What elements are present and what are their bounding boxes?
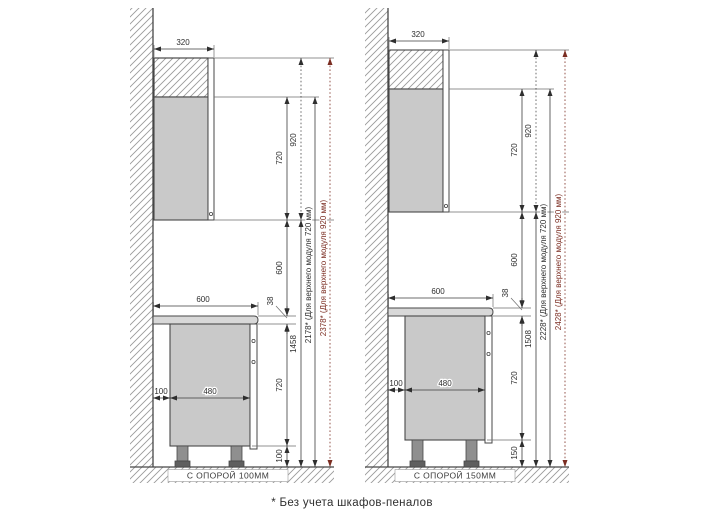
- base-front-knob-2: [487, 352, 490, 355]
- dim-countertop-thickness: 38: [501, 288, 510, 297]
- countertop: [388, 308, 493, 316]
- dim-floor-to-upper: 1508: [524, 330, 533, 348]
- upper-cabinet-door: [443, 50, 449, 212]
- support-label: С ОПОРОЙ 100ММ: [187, 470, 269, 481]
- leg-front-foot: [229, 461, 244, 467]
- dim-upper-height-920: 920: [289, 133, 298, 147]
- dim-upper-height-920: 920: [524, 124, 533, 138]
- dim-floor-to-upper: 1458: [289, 335, 298, 353]
- leg-rear: [177, 446, 188, 461]
- dim-total-height-720: 2178* (Для верхнего модуля 720 мм): [304, 206, 313, 343]
- dim-countertop-depth: 600: [196, 295, 210, 304]
- upper-cabinet: [154, 58, 214, 220]
- dim-total-height-920: 2428* (Для верхнего модуля 920 мм): [554, 193, 563, 330]
- base-front-knob-2: [252, 360, 255, 363]
- countertop: [153, 316, 258, 324]
- base-cabinet-body: [170, 324, 250, 446]
- dim-gap: 600: [510, 253, 519, 267]
- left-diagram: С ОПОРОЙ 100ММ 320 6: [130, 8, 334, 483]
- right-diagram: С ОПОРОЙ 150ММ 320 6: [365, 8, 569, 483]
- dim-base-height: 720: [275, 378, 284, 392]
- dim-support-height: 100: [275, 449, 284, 463]
- footnote: * Без учета шкафов-пеналов: [271, 497, 433, 509]
- dim-wall-clearance: 100: [389, 379, 403, 388]
- upper-door-knob: [444, 204, 447, 207]
- upper-cabinet-920-extension: [389, 50, 443, 89]
- dim-base-depth: 480: [203, 387, 217, 396]
- dim-upper-depth: 320: [411, 30, 425, 39]
- dim-upper-height-720: 720: [510, 143, 519, 157]
- wall-hatch: [365, 8, 388, 467]
- upper-cabinet-body: [154, 97, 208, 220]
- chain-dimensions: 720 600 38 720 100: [266, 97, 287, 467]
- base-cabinet-body: [405, 316, 485, 440]
- leg-rear-foot: [410, 461, 425, 467]
- dim-total-height-720: 2228* (Для верхнего модуля 720 мм): [539, 203, 548, 340]
- chain-dimensions: 720 600 38 720 150: [501, 89, 522, 467]
- kitchen-mounting-drawing: С ОПОРОЙ 100ММ 320 6: [0, 0, 702, 523]
- base-front-knob-1: [487, 331, 490, 334]
- dim-gap: 600: [275, 261, 284, 275]
- leg-rear-foot: [175, 461, 190, 467]
- upper-cabinet-door: [208, 58, 214, 220]
- dim-total-height-920: 2378* (Для верхнего модуля 920 мм): [319, 199, 328, 336]
- dim-countertop-depth: 600: [431, 287, 445, 296]
- leg-rear: [412, 440, 423, 461]
- upper-cabinet: [389, 50, 449, 212]
- upper-cabinet-body: [389, 89, 443, 212]
- dim-base-depth: 480: [438, 379, 452, 388]
- drawing-canvas: С ОПОРОЙ 100ММ 320 6: [0, 0, 702, 523]
- leg-front-foot: [464, 461, 479, 467]
- upper-cabinet-920-extension: [154, 58, 208, 97]
- dim-support-height: 150: [510, 446, 519, 460]
- dim-upper-height-720: 720: [275, 151, 284, 165]
- dim-wall-clearance: 100: [154, 387, 168, 396]
- dim-countertop-thickness: 38: [266, 296, 275, 305]
- wall-hatch: [130, 8, 153, 467]
- base-front-knob-1: [252, 339, 255, 342]
- support-label: С ОПОРОЙ 150ММ: [414, 470, 496, 481]
- leg-front: [231, 446, 242, 461]
- base-cabinet-front: [485, 316, 492, 443]
- dim-upper-depth: 320: [176, 38, 190, 47]
- leg-front: [466, 440, 477, 461]
- dim-base-height: 720: [510, 371, 519, 385]
- upper-door-knob: [209, 212, 212, 215]
